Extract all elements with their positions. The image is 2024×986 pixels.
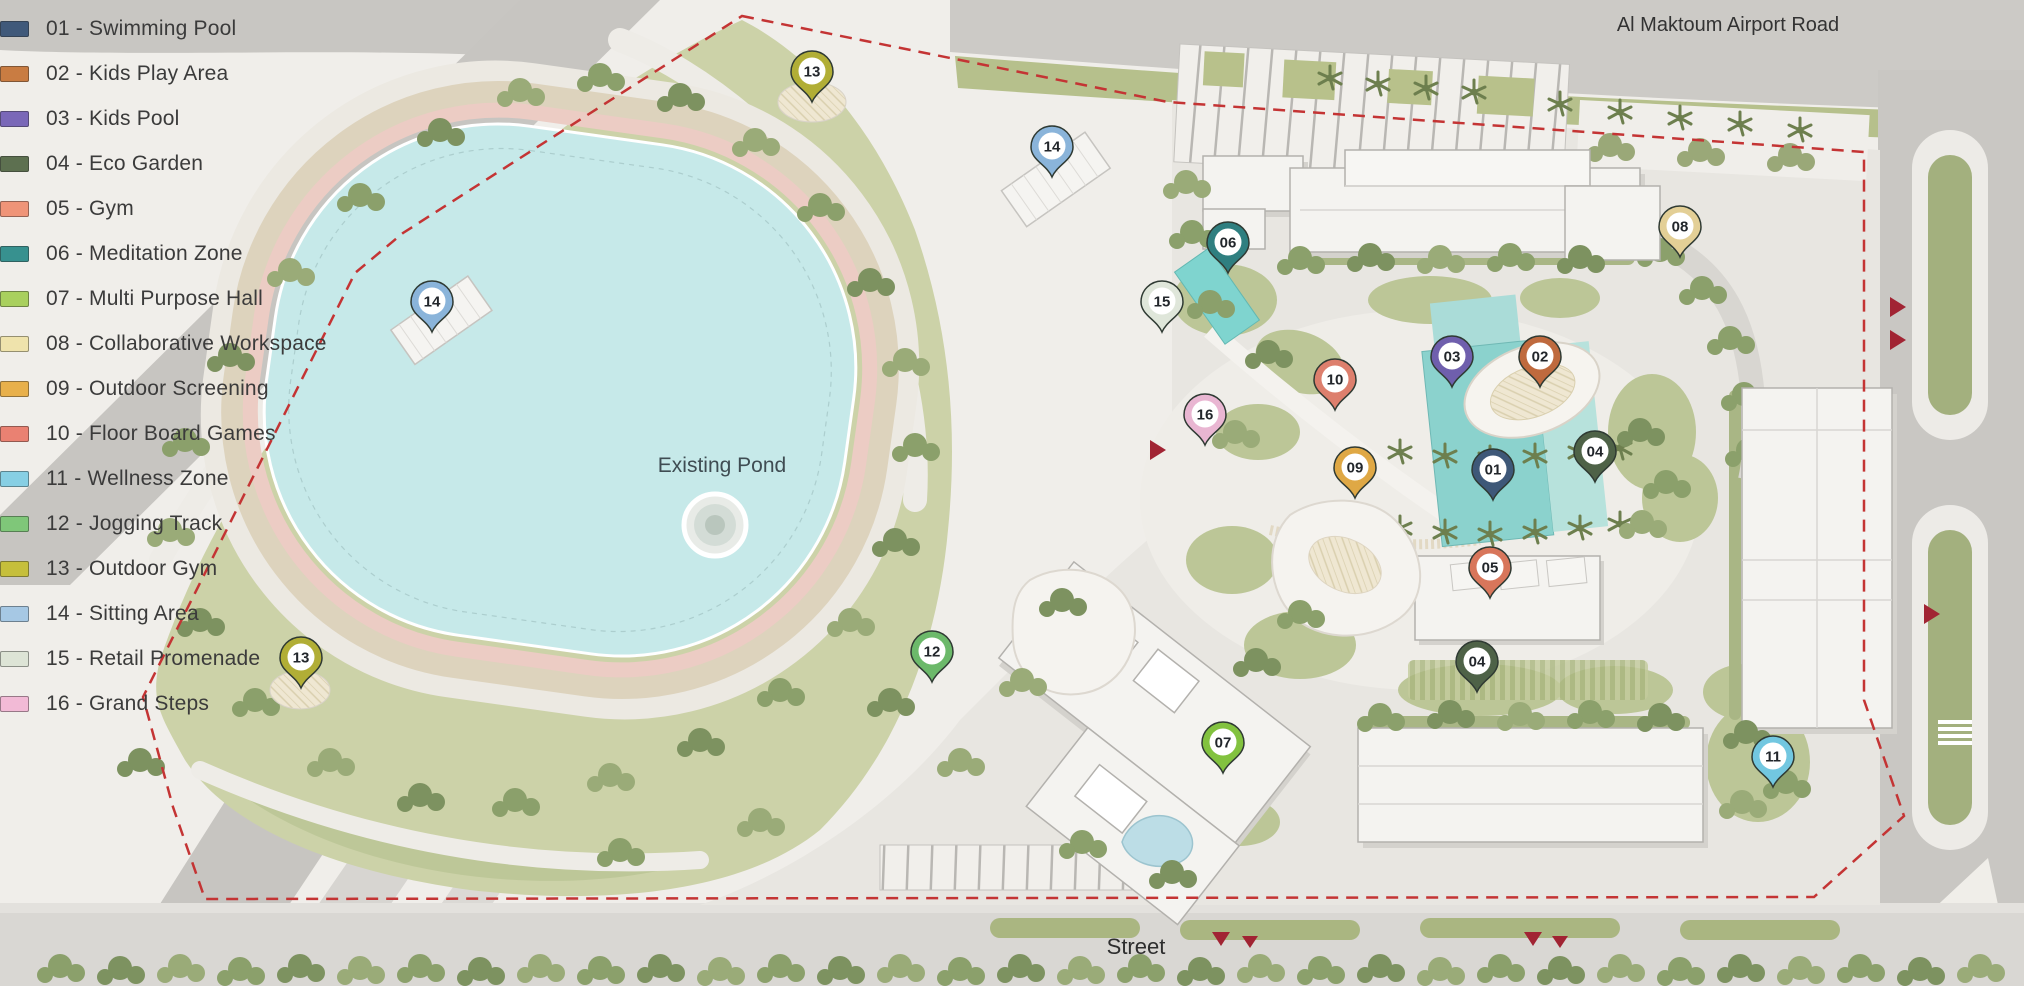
svg-text:12: 12 [924, 644, 941, 661]
legend-color-swatch [0, 336, 29, 352]
legend-item: 09 - Outdoor Screening [0, 366, 327, 411]
svg-text:14: 14 [424, 294, 441, 311]
legend-item-label: 13 - Outdoor Gym [46, 557, 217, 581]
legend-color-swatch [0, 651, 29, 667]
svg-text:08: 08 [1672, 219, 1689, 236]
legend-item: 15 - Retail Promenade [0, 636, 327, 681]
legend-item-label: 15 - Retail Promenade [46, 647, 260, 671]
svg-text:01: 01 [1485, 462, 1502, 479]
legend-color-swatch [0, 516, 29, 532]
legend-item: 12 - Jogging Track [0, 501, 327, 546]
legend-list: 01 - Swimming Pool 02 - Kids Play Area 0… [0, 6, 327, 726]
legend-item: 10 - Floor Board Games [0, 411, 327, 456]
legend-item-label: 01 - Swimming Pool [46, 17, 236, 41]
legend-item: 14 - Sitting Area [0, 591, 327, 636]
legend-item-label: 05 - Gym [46, 197, 134, 221]
legend-item: 01 - Swimming Pool [0, 6, 327, 51]
svg-text:04: 04 [1469, 654, 1486, 671]
svg-text:04: 04 [1587, 444, 1604, 461]
legend-color-swatch [0, 21, 29, 37]
legend-color-swatch [0, 246, 29, 262]
svg-text:09: 09 [1347, 460, 1364, 477]
legend-item: 04 - Eco Garden [0, 141, 327, 186]
airport-road-label: Al Maktoum Airport Road [1617, 14, 1839, 36]
svg-text:02: 02 [1532, 349, 1549, 366]
svg-text:10: 10 [1327, 372, 1344, 389]
legend-item: 05 - Gym [0, 186, 327, 231]
legend-item-label: 06 - Meditation Zone [46, 242, 243, 266]
svg-text:07: 07 [1215, 735, 1232, 752]
legend-item-label: 03 - Kids Pool [46, 107, 180, 131]
legend-color-swatch [0, 606, 29, 622]
legend-item: 03 - Kids Pool [0, 96, 327, 141]
legend-color-swatch [0, 471, 29, 487]
legend-color-swatch [0, 426, 29, 442]
legend-item-label: 11 - Wellness Zone [46, 467, 229, 491]
svg-text:06: 06 [1220, 235, 1237, 252]
legend-color-swatch [0, 696, 29, 712]
svg-text:11: 11 [1765, 749, 1781, 766]
svg-text:14: 14 [1044, 139, 1061, 156]
legend-item: 07 - Multi Purpose Hall [0, 276, 327, 321]
site-plan: Al Maktoum Airport Road Existing Pond St… [0, 0, 2024, 986]
legend-item-label: 09 - Outdoor Screening [46, 377, 269, 401]
legend-color-swatch [0, 111, 29, 127]
legend-item: 06 - Meditation Zone [0, 231, 327, 276]
legend-item-label: 08 - Collaborative Workspace [46, 332, 327, 356]
legend: 01 - Swimming Pool 02 - Kids Play Area 0… [0, 6, 327, 726]
legend-color-swatch [0, 201, 29, 217]
legend-item: 08 - Collaborative Workspace [0, 321, 327, 366]
svg-text:16: 16 [1197, 407, 1214, 424]
legend-item-label: 14 - Sitting Area [46, 602, 199, 626]
legend-color-swatch [0, 291, 29, 307]
street-label: Street [1107, 934, 1166, 959]
east-road [1878, 70, 2024, 942]
legend-item-label: 07 - Multi Purpose Hall [46, 287, 263, 311]
legend-item: 16 - Grand Steps [0, 681, 327, 726]
legend-color-swatch [0, 156, 29, 172]
legend-item: 13 - Outdoor Gym [0, 546, 327, 591]
legend-item-label: 04 - Eco Garden [46, 152, 203, 176]
legend-item-label: 12 - Jogging Track [46, 512, 222, 536]
legend-item: 11 - Wellness Zone [0, 456, 327, 501]
legend-item-label: 16 - Grand Steps [46, 692, 209, 716]
svg-text:13: 13 [804, 64, 821, 81]
pond-fountain [684, 494, 746, 556]
legend-color-swatch [0, 561, 29, 577]
legend-color-swatch [0, 381, 29, 397]
svg-text:03: 03 [1444, 349, 1461, 366]
svg-text:05: 05 [1482, 560, 1499, 577]
svg-text:15: 15 [1154, 294, 1171, 311]
legend-item-label: 02 - Kids Play Area [46, 62, 228, 86]
legend-item-label: 10 - Floor Board Games [46, 422, 276, 446]
legend-color-swatch [0, 66, 29, 82]
existing-pond-label: Existing Pond [658, 454, 786, 477]
street-road [0, 903, 2024, 986]
legend-item: 02 - Kids Play Area [0, 51, 327, 96]
